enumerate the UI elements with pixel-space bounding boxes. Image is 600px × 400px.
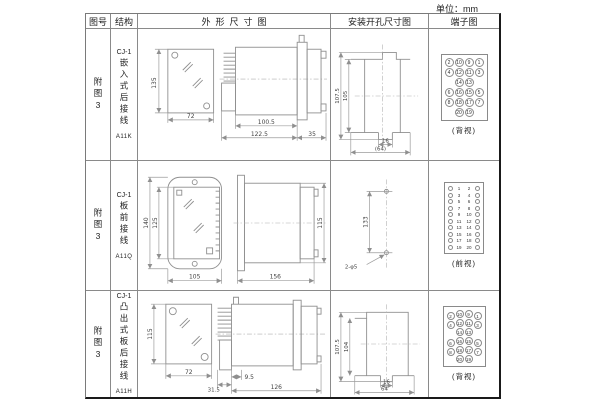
install-drawing-a11q: 133 2-φ5 [331, 161, 428, 290]
terminal-pin-number: 16 [465, 232, 473, 237]
dim-label: 9.5 [244, 373, 254, 380]
terminal-pin-row: 1112 [448, 219, 480, 225]
dim-label: 122.5 [251, 131, 268, 138]
terminal-pin-hole [475, 219, 480, 224]
terminal-pin-number: 12 [465, 219, 473, 224]
dim-label: 156 [270, 274, 282, 281]
dim-label: 2-φ5 [345, 265, 357, 271]
terminal-pin-blank [474, 330, 482, 338]
terminal-pin-hole [448, 238, 453, 243]
terminal-pin-row: 1413 [445, 78, 484, 87]
terminal-pin: 2 [445, 58, 454, 67]
structure-label: 嵌入式后接线 [118, 58, 130, 127]
terminal-pin: 19 [465, 355, 473, 363]
terminal-diagram: 1234567891011121314151617181920 [444, 182, 484, 254]
terminal-pin-hole [475, 206, 480, 211]
terminal-pin: 3 [475, 68, 484, 77]
terminal-pin-number: 18 [465, 238, 473, 243]
row1-structure-cell: CJ-1 嵌入式后接线 A11K [111, 29, 138, 161]
terminal-pin-blank [475, 78, 484, 87]
terminal-pin: 15 [465, 88, 474, 97]
terminal-pin-row: 78 [448, 206, 480, 212]
terminal-pin-row: 818177 [445, 98, 484, 107]
terminal-pin-row: 1920 [448, 245, 480, 251]
terminal-pin: 13 [465, 78, 474, 87]
terminal-pin-hole [475, 212, 480, 217]
dim-label: 107.5 [335, 339, 341, 355]
terminal-pin-hole [475, 199, 480, 204]
terminal-pin: 8 [445, 98, 454, 107]
terminal-pin: 15 [465, 337, 473, 345]
row2-install-cell: 133 2-φ5 [331, 161, 429, 291]
header-terminal-diagram: 端子图 [429, 14, 499, 29]
terminal-pin-number: 17 [455, 238, 463, 243]
fig-no: 附图3 [92, 208, 104, 244]
terminal-pin-row: 616155 [447, 337, 482, 345]
dim-label: 107.5 [335, 88, 341, 104]
dim-label: 72 [187, 113, 195, 120]
dim-label: 115 [147, 328, 154, 340]
terminal-pin: 10 [455, 58, 464, 67]
terminal-pin: 16 [455, 88, 464, 97]
type-code: A11K [116, 134, 132, 140]
terminal-pin-number: 11 [455, 219, 463, 224]
terminal-pin-number: 7 [455, 206, 463, 211]
terminal-pin-row: 818177 [447, 346, 482, 354]
row3-fig-no-cell: 附图3 [86, 291, 111, 397]
header-outline-dims: 外形尺寸图 [138, 14, 331, 29]
terminal-pin-blank [447, 357, 455, 365]
dim-label: 140 [143, 217, 150, 229]
terminal-pin-row: 1413 [447, 328, 482, 336]
terminal-pin: 8 [447, 348, 455, 356]
terminal-pin-number: 9 [455, 212, 463, 217]
terminal-pin-row: 12 [448, 186, 480, 192]
spec-table: 图号 结构 外形尺寸图 安装开孔尺寸图 端子图 附图3 CJ-1 嵌入式后接线 … [85, 13, 501, 399]
row1-outline-cell: 135 72 100.5 122.5 35 [138, 29, 331, 161]
terminal-pin: 16 [456, 337, 464, 345]
terminal-pin-row: 21091 [447, 310, 482, 318]
outline-drawing-a11k: 135 72 100.5 122.5 35 [138, 29, 330, 160]
terminal-pin: 3 [474, 321, 482, 329]
terminal-pin-number: 1 [455, 186, 463, 191]
terminal-diagram: 2109141211314136161558181772019 [443, 306, 486, 367]
terminal-pin-hole [475, 225, 480, 230]
terminal-pin: 19 [465, 108, 474, 117]
model-label: CJ-1 [117, 192, 132, 199]
dim-label: 135 [151, 77, 158, 89]
terminal-pin: 20 [455, 108, 464, 117]
terminal-pin-number: 13 [455, 225, 463, 230]
terminal-pin-row: 21091 [445, 58, 484, 67]
terminal-pin-blank [445, 78, 454, 87]
model-label: CJ-1 [117, 293, 132, 300]
terminal-pin: 4 [447, 321, 455, 329]
terminal-pin: 5 [474, 339, 482, 347]
terminal-pin-hole [448, 219, 453, 224]
header-fig-no: 图号 [86, 14, 111, 29]
type-code: A11Q [116, 254, 133, 260]
terminal-pin: 12 [456, 319, 464, 327]
terminal-pin-row: 56 [448, 199, 480, 205]
terminal-pin-hole [475, 245, 480, 250]
terminal-pin-number: 2 [465, 186, 473, 191]
dim-label: 16 [383, 379, 390, 385]
terminal-pin-hole [448, 199, 453, 204]
terminal-pin-hole [448, 186, 453, 191]
row2-structure-cell: CJ-1 板前接线 A11Q [111, 161, 138, 291]
terminal-pin: 17 [465, 346, 473, 354]
dim-label: 126 [271, 383, 283, 390]
terminal-diagram: 2109141211314136161558181772019 [441, 54, 488, 121]
dim-label: 105 [189, 274, 201, 281]
terminal-pin: 10 [456, 310, 464, 318]
terminal-pin-row: 910 [448, 212, 480, 218]
dim-label: 133 [363, 216, 370, 228]
terminal-pin: 7 [475, 98, 484, 107]
terminal-pin-row: 1314 [448, 225, 480, 231]
terminal-pin-blank [447, 330, 455, 338]
install-drawing-a11k: 107.5 105 16 (64) [331, 29, 428, 160]
terminal-pin: 4 [445, 68, 454, 77]
terminal-pin-blank [475, 108, 484, 117]
terminal-pin-hole [448, 225, 453, 230]
type-code: A11H [116, 389, 133, 395]
terminal-pin-row: 2019 [445, 108, 484, 117]
row2-terminal-cell: 1234567891011121314151617181920 (前视) [429, 161, 499, 291]
terminal-pin-blank [474, 357, 482, 365]
terminal-pin-number: 6 [465, 199, 473, 204]
terminal-pin: 14 [456, 328, 464, 336]
install-drawing-a11h: 107.5 104 16 64 [331, 292, 428, 397]
outline-drawing-a11q: 140 125 105 156 115 [138, 161, 330, 290]
dim-label: 72 [185, 368, 193, 375]
terminal-pin: 18 [456, 346, 464, 354]
dim-label: 100.5 [258, 119, 275, 126]
terminal-pin-row: 412113 [445, 68, 484, 77]
terminal-pin-hole [448, 232, 453, 237]
terminal-pin: 9 [465, 310, 473, 318]
terminal-pin-number: 14 [465, 225, 473, 230]
row1-fig-no-cell: 附图3 [86, 29, 111, 161]
row3-terminal-cell: 2109141211314136161558181772019 (背视) [429, 291, 499, 397]
dim-label: 115 [317, 217, 324, 229]
terminal-pin-row: 1516 [448, 232, 480, 238]
terminal-pin-number: 20 [465, 245, 473, 250]
row3-install-cell: 107.5 104 16 64 [331, 291, 429, 397]
row2-fig-no-cell: 附图3 [86, 161, 111, 291]
row3-outline-cell: 115 72 9.5 31.5 126 [138, 291, 331, 397]
row2-outline-cell: 140 125 105 156 115 [138, 161, 331, 291]
terminal-pin: 9 [465, 58, 474, 67]
terminal-caption: (背视) [452, 371, 476, 382]
terminal-pin: 5 [475, 88, 484, 97]
terminal-pin-hole [448, 212, 453, 217]
fig-no: 附图3 [92, 326, 104, 362]
terminal-pin-hole [475, 186, 480, 191]
dim-label: 35 [308, 131, 316, 138]
terminal-pin-hole [475, 232, 480, 237]
structure-label: 板前接线 [118, 201, 130, 247]
document-page: 单位：mm 图号 结构 外形尺寸图 安装开孔尺寸图 端子图 附图3 CJ-1 嵌… [0, 0, 600, 400]
terminal-pin-number: 3 [455, 193, 463, 198]
terminal-caption: (前视) [452, 258, 476, 269]
terminal-pin: 11 [465, 68, 474, 77]
terminal-caption: (背视) [452, 125, 476, 136]
terminal-pin-number: 8 [465, 206, 473, 211]
terminal-pin: 1 [474, 312, 482, 320]
dim-label: 64 [381, 386, 388, 392]
terminal-pin: 2 [447, 312, 455, 320]
terminal-pin-row: 34 [448, 193, 480, 199]
terminal-pin: 6 [445, 88, 454, 97]
terminal-pin-row: 2019 [447, 355, 482, 363]
terminal-pin-row: 412113 [447, 319, 482, 327]
header-install-dims: 安装开孔尺寸图 [331, 14, 429, 29]
row1-install-cell: 107.5 105 16 (64) [331, 29, 429, 161]
model-label: CJ-1 [117, 49, 132, 56]
terminal-pin: 12 [455, 68, 464, 77]
dim-label: 104 [344, 341, 350, 352]
dim-label: 105 [343, 91, 349, 101]
structure-label: 凸出式板后接线 [118, 302, 130, 383]
fig-no: 附图3 [92, 77, 104, 113]
terminal-pin: 7 [474, 348, 482, 356]
terminal-pin-number: 19 [455, 245, 463, 250]
terminal-pin: 20 [456, 355, 464, 363]
terminal-pin: 11 [465, 319, 473, 327]
header-structure: 结构 [111, 14, 138, 29]
dim-label: 31.5 [208, 387, 220, 393]
terminal-pin-number: 5 [455, 199, 463, 204]
terminal-pin-number: 4 [465, 193, 473, 198]
terminal-pin: 14 [455, 78, 464, 87]
terminal-pin-hole [448, 245, 453, 250]
terminal-pin: 1 [475, 58, 484, 67]
terminal-pin-row: 616155 [445, 88, 484, 97]
terminal-pin-number: 15 [455, 232, 463, 237]
row3-structure-cell: CJ-1 凸出式板后接线 A11H [111, 291, 138, 397]
terminal-pin-hole [475, 193, 480, 198]
row1-terminal-cell: 2109141211314136161558181772019 (背视) [429, 29, 499, 161]
terminal-pin: 6 [447, 339, 455, 347]
dim-label: 125 [152, 217, 159, 229]
terminal-pin: 17 [465, 98, 474, 107]
terminal-pin-blank [445, 108, 454, 117]
outline-drawing-a11h: 115 72 9.5 31.5 126 [138, 292, 330, 397]
dim-label: 16 [382, 139, 389, 145]
terminal-pin-row: 1718 [448, 238, 480, 244]
terminal-pin: 18 [455, 98, 464, 107]
dim-label: (64) [375, 146, 386, 152]
terminal-pin-hole [475, 238, 480, 243]
terminal-pin-hole [448, 193, 453, 198]
terminal-pin-hole [448, 206, 453, 211]
terminal-pin: 13 [465, 328, 473, 336]
terminal-pin-number: 10 [465, 212, 473, 217]
